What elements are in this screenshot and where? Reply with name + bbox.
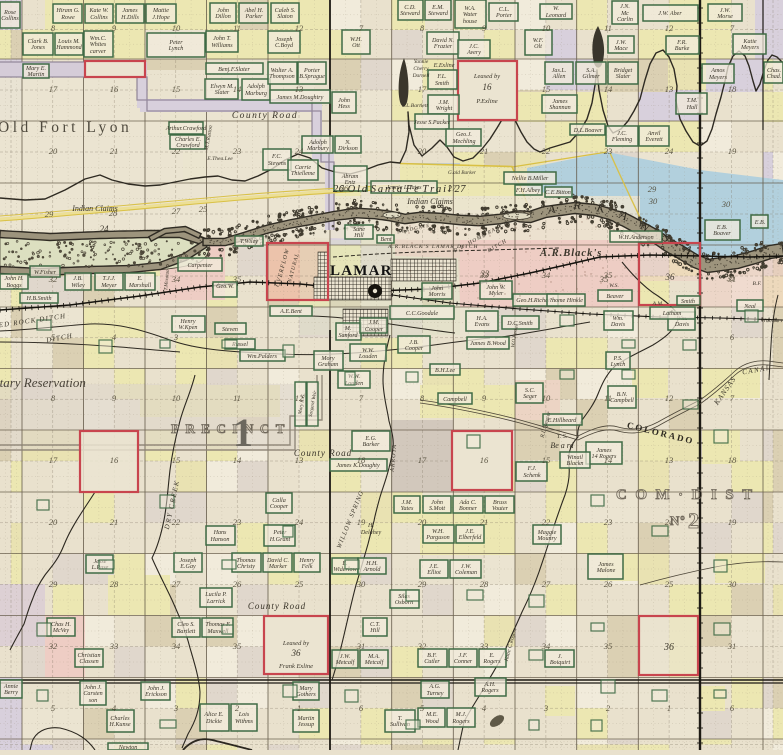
svg-text:M.J.: M.J. bbox=[455, 712, 467, 718]
svg-text:?home Hinkle: ?home Hinkle bbox=[549, 298, 583, 304]
svg-text:23: 23 bbox=[233, 146, 242, 156]
svg-text:Jesse S.Packer: Jesse S.Packer bbox=[414, 120, 451, 126]
svg-text:T.Wiley: T.Wiley bbox=[240, 239, 258, 245]
svg-text:Coleman: Coleman bbox=[455, 570, 477, 576]
svg-text:Marker: Marker bbox=[268, 564, 288, 570]
svg-text:County Road: County Road bbox=[232, 111, 298, 121]
svg-text:Ott: Ott bbox=[352, 43, 360, 49]
svg-text:25: 25 bbox=[295, 579, 304, 589]
svg-text:James B.Wood: James B.Wood bbox=[470, 341, 507, 347]
svg-text:Rowe: Rowe bbox=[60, 15, 75, 21]
svg-text:Berry: Berry bbox=[4, 690, 18, 696]
svg-text:Chad.: Chad. bbox=[767, 74, 782, 80]
svg-text:12: 12 bbox=[295, 23, 304, 33]
svg-text:Barker: Barker bbox=[363, 442, 381, 448]
svg-text:Seger: Seger bbox=[523, 394, 538, 400]
svg-text:Porter: Porter bbox=[495, 13, 513, 19]
svg-text:24: 24 bbox=[665, 146, 674, 156]
svg-text:15: 15 bbox=[542, 455, 551, 465]
svg-text:T.J.J.: T.J.J. bbox=[103, 276, 116, 282]
svg-text:1: 1 bbox=[667, 703, 671, 713]
svg-text:10: 10 bbox=[172, 23, 181, 33]
svg-text:Everett: Everett bbox=[644, 137, 663, 143]
svg-text:3: 3 bbox=[543, 703, 548, 713]
svg-text:Smith: Smith bbox=[681, 299, 695, 305]
svg-text:5: 5 bbox=[420, 703, 424, 713]
svg-text:11: 11 bbox=[604, 393, 612, 403]
svg-text:Frank Exline: Frank Exline bbox=[278, 663, 313, 670]
svg-text:30: 30 bbox=[721, 199, 731, 209]
svg-text:Gilmer: Gilmer bbox=[582, 74, 600, 80]
svg-text:Schenk: Schenk bbox=[523, 473, 541, 479]
svg-text:27: 27 bbox=[172, 206, 181, 216]
svg-text:Wm.Palders: Wm.Palders bbox=[247, 354, 278, 360]
svg-text:Leonard: Leonard bbox=[545, 13, 567, 19]
svg-text:10: 10 bbox=[542, 393, 551, 403]
svg-text:Fleming: Fleming bbox=[611, 137, 632, 143]
svg-text:28: 28 bbox=[110, 579, 119, 589]
svg-text:Be a rd: Be a rd bbox=[550, 441, 574, 450]
svg-text:Elberfeld: Elberfeld bbox=[458, 534, 483, 541]
svg-text:14: 14 bbox=[604, 455, 613, 465]
svg-text:Cherry: Cherry bbox=[413, 66, 429, 72]
svg-text:Stevens: Stevens bbox=[268, 161, 287, 167]
svg-text:Meyer: Meyer bbox=[100, 283, 117, 289]
svg-text:M.E.: M.E. bbox=[425, 712, 438, 718]
svg-text:Carpenter: Carpenter bbox=[187, 263, 213, 269]
svg-text:11: 11 bbox=[604, 23, 612, 33]
svg-text:Allen: Allen bbox=[552, 74, 566, 80]
svg-text:H.B.Smith: H.B.Smith bbox=[25, 296, 51, 302]
svg-text:Thompson: Thompson bbox=[269, 74, 294, 80]
svg-text:A.E.Bent: A.E.Bent bbox=[279, 309, 302, 315]
svg-text:W.S.: W.S. bbox=[609, 283, 619, 289]
svg-text:Slater: Slater bbox=[215, 90, 230, 96]
svg-text:26: 26 bbox=[233, 579, 242, 589]
svg-text:James: James bbox=[122, 8, 138, 14]
svg-text:11: 11 bbox=[233, 23, 241, 33]
svg-text:G.ald Barker: G.ald Barker bbox=[448, 170, 477, 176]
svg-text:19: 19 bbox=[357, 517, 366, 527]
svg-text:20: 20 bbox=[418, 146, 427, 156]
svg-text:Water: Water bbox=[463, 12, 478, 18]
svg-text:Collins: Collins bbox=[90, 15, 108, 21]
svg-text:29: 29 bbox=[45, 209, 54, 219]
svg-text:W.H.Anderson: W.H.Anderson bbox=[618, 235, 653, 241]
svg-text:C.Boyd: C.Boyd bbox=[275, 43, 294, 49]
svg-text:Cooper: Cooper bbox=[270, 504, 289, 510]
svg-text:Williams: Williams bbox=[211, 43, 233, 49]
svg-text:J.B.: J.B. bbox=[73, 276, 82, 282]
svg-text:34: 34 bbox=[541, 641, 551, 651]
svg-text:22: 22 bbox=[542, 146, 551, 156]
svg-text:35: 35 bbox=[232, 274, 242, 284]
svg-text:J.Hope: J.Hope bbox=[152, 15, 170, 21]
svg-text:Steven: Steven bbox=[222, 327, 238, 333]
svg-text:Bent: Bent bbox=[380, 237, 391, 243]
svg-text:C.E.Bitton: C.E.Bitton bbox=[545, 190, 571, 196]
svg-text:Metcalf: Metcalf bbox=[364, 659, 385, 666]
svg-text:29: 29 bbox=[648, 184, 657, 194]
svg-text:31: 31 bbox=[726, 273, 736, 283]
svg-text:25: 25 bbox=[199, 204, 208, 214]
svg-text:Arnold: Arnold bbox=[363, 567, 382, 573]
svg-text:Hiram G.: Hiram G. bbox=[55, 8, 79, 14]
svg-text:24: 24 bbox=[295, 146, 304, 156]
svg-text:Benj.F.Slater: Benj.F.Slater bbox=[218, 67, 250, 73]
svg-text:Kate W.: Kate W. bbox=[88, 8, 108, 14]
svg-text:2: 2 bbox=[688, 508, 706, 533]
svg-text:Marburg: Marburg bbox=[244, 91, 267, 97]
svg-text:28: 28 bbox=[480, 579, 489, 589]
svg-text:Nellie B.Miller: Nellie B.Miller bbox=[511, 176, 549, 182]
svg-text:Hill: Hill bbox=[353, 233, 364, 239]
svg-text:Metcalf: Metcalf bbox=[335, 659, 356, 666]
svg-text:13: 13 bbox=[295, 84, 304, 94]
svg-text:Louden: Louden bbox=[358, 354, 377, 360]
svg-text:Dillon: Dillon bbox=[214, 14, 231, 20]
svg-text:Wood: Wood bbox=[425, 719, 440, 725]
svg-text:27: 27 bbox=[172, 579, 181, 589]
svg-text:Conner: Conner bbox=[454, 659, 473, 665]
svg-text:H.Dills: H.Dills bbox=[120, 15, 139, 21]
svg-text:Smith: Smith bbox=[435, 81, 449, 87]
svg-text:Vouter: Vouter bbox=[492, 506, 509, 512]
svg-text:Lynch: Lynch bbox=[610, 362, 626, 368]
svg-text:H.Kunse: H.Kunse bbox=[108, 722, 130, 728]
svg-text:A.G.: A.G. bbox=[428, 684, 440, 690]
svg-text:13: 13 bbox=[665, 84, 674, 94]
svg-text:Rogers: Rogers bbox=[451, 719, 470, 725]
svg-text:5: 5 bbox=[51, 703, 55, 713]
svg-text:Parker: Parker bbox=[245, 14, 264, 20]
svg-text:County Road: County Road bbox=[294, 448, 352, 458]
svg-text:F.J.: F.J. bbox=[527, 466, 537, 472]
svg-text:29: 29 bbox=[49, 579, 58, 589]
svg-text:17: 17 bbox=[49, 84, 58, 94]
svg-text:E.Hillbeard: E.Hillbeard bbox=[547, 418, 578, 424]
svg-text:D.L.Boaver: D.L.Boaver bbox=[573, 128, 603, 134]
svg-text:Hill: Hill bbox=[369, 628, 380, 634]
svg-text:P.Exline: P.Exline bbox=[475, 98, 497, 105]
svg-text:Classen: Classen bbox=[79, 659, 98, 665]
svg-text:C.C.Goodale: C.C.Goodale bbox=[406, 311, 438, 317]
svg-text:Hess: Hess bbox=[337, 104, 350, 110]
svg-text:Lois: Lois bbox=[238, 712, 250, 718]
svg-text:29: 29 bbox=[418, 579, 427, 589]
svg-text:Leased by: Leased by bbox=[282, 640, 309, 647]
svg-text:Graham: Graham bbox=[318, 362, 339, 368]
svg-text:16: 16 bbox=[480, 455, 489, 465]
svg-text:Frazier: Frazier bbox=[433, 44, 453, 50]
svg-text:Cleo S.: Cleo S. bbox=[177, 622, 195, 628]
svg-text:33: 33 bbox=[109, 641, 119, 651]
svg-text:30: 30 bbox=[648, 196, 658, 206]
svg-text:E.Gay: E.Gay bbox=[179, 564, 196, 570]
svg-text:McVey: McVey bbox=[52, 628, 70, 634]
svg-text:J.W. Aber: J.W. Aber bbox=[658, 11, 682, 17]
svg-text:Neal: Neal bbox=[743, 304, 756, 310]
svg-text:Marshall: Marshall bbox=[128, 283, 152, 289]
svg-text:John H.: John H. bbox=[4, 276, 23, 282]
svg-text:33: 33 bbox=[480, 269, 491, 279]
svg-text:15: 15 bbox=[172, 84, 181, 94]
svg-text:Davis: Davis bbox=[674, 322, 690, 328]
svg-text:Martin: Martin bbox=[27, 72, 45, 78]
svg-text:13: 13 bbox=[665, 455, 674, 465]
svg-text:Beaver: Beaver bbox=[606, 294, 624, 300]
svg-text:Sanford: Sanford bbox=[338, 332, 358, 339]
svg-text:27: 27 bbox=[542, 579, 551, 589]
svg-text:15: 15 bbox=[172, 455, 181, 465]
svg-text:Latham: Latham bbox=[662, 311, 682, 317]
svg-text:21: 21 bbox=[480, 517, 489, 527]
svg-text:Leased by: Leased by bbox=[473, 73, 500, 80]
svg-text:24: 24 bbox=[100, 224, 110, 234]
svg-text:24: 24 bbox=[295, 517, 304, 527]
svg-text:S.Mott: S.Mott bbox=[429, 506, 445, 512]
svg-text:Withms: Withms bbox=[235, 719, 254, 725]
svg-text:14: 14 bbox=[233, 455, 242, 465]
svg-text:32: 32 bbox=[417, 641, 427, 651]
svg-text:Cooper: Cooper bbox=[405, 346, 424, 352]
svg-text:Carlin: Carlin bbox=[617, 17, 633, 23]
svg-text:Rogers: Rogers bbox=[482, 659, 501, 665]
svg-text:E.B.: E.B. bbox=[754, 220, 766, 226]
svg-text:F.H.Albey: F.H.Albey bbox=[515, 188, 541, 194]
svg-text:son: son bbox=[89, 698, 97, 704]
svg-text:Meyers: Meyers bbox=[708, 75, 728, 81]
svg-text:Slater: Slater bbox=[616, 74, 631, 80]
svg-text:Hammond: Hammond bbox=[55, 45, 82, 51]
svg-text:Elliot: Elliot bbox=[426, 570, 441, 576]
svg-text:Morse: Morse bbox=[716, 14, 733, 20]
svg-text:11: 11 bbox=[233, 393, 241, 403]
svg-text:carver: carver bbox=[90, 49, 107, 55]
svg-text:21: 21 bbox=[110, 146, 119, 156]
svg-text:Erickson: Erickson bbox=[144, 692, 167, 698]
svg-text:F.L.: F.L. bbox=[436, 74, 446, 80]
svg-text:Davis: Davis bbox=[610, 322, 626, 328]
svg-text:Mounry: Mounry bbox=[536, 536, 557, 542]
svg-text:Wright: Wright bbox=[436, 106, 453, 112]
svg-text:E.Exline: E.Exline bbox=[433, 63, 455, 69]
svg-text:21: 21 bbox=[110, 517, 119, 527]
svg-text:Meyers: Meyers bbox=[740, 45, 760, 51]
svg-text:30: 30 bbox=[727, 579, 737, 589]
svg-text:E.: E. bbox=[136, 276, 142, 282]
svg-text:17: 17 bbox=[418, 84, 427, 94]
svg-text:LAMAR: LAMAR bbox=[330, 263, 393, 279]
svg-text:17: 17 bbox=[418, 455, 427, 465]
svg-text:Parguson: Parguson bbox=[425, 535, 449, 541]
svg-text:16: 16 bbox=[110, 84, 119, 94]
svg-text:A.R.Black's: A.R.Black's bbox=[539, 248, 602, 259]
svg-text:Carsten: Carsten bbox=[83, 691, 102, 697]
svg-text:Rogers: Rogers bbox=[480, 688, 499, 694]
svg-text:Mechling: Mechling bbox=[451, 139, 475, 145]
svg-text:10: 10 bbox=[172, 393, 181, 403]
svg-text:15: 15 bbox=[542, 84, 551, 94]
svg-text:Newton: Newton bbox=[118, 745, 138, 750]
svg-text:16: 16 bbox=[110, 455, 119, 465]
svg-text:20: 20 bbox=[49, 517, 58, 527]
svg-text:Campbell: Campbell bbox=[610, 398, 634, 404]
svg-text:Nº: Nº bbox=[670, 513, 686, 528]
svg-text:Turney: Turney bbox=[427, 691, 444, 697]
svg-text:32: 32 bbox=[48, 641, 58, 651]
svg-text:12: 12 bbox=[665, 23, 674, 33]
svg-text:Whites: Whites bbox=[90, 42, 107, 48]
svg-text:22: 22 bbox=[172, 146, 181, 156]
svg-text:T.M.: T.M. bbox=[686, 98, 697, 104]
svg-text:Dickie: Dickie bbox=[205, 719, 222, 725]
svg-text:Geo.W.: Geo.W. bbox=[216, 284, 234, 290]
svg-text:Bonner: Bonner bbox=[459, 506, 478, 512]
svg-text:Cooper: Cooper bbox=[365, 327, 384, 333]
svg-text:F.C.: F.C. bbox=[271, 154, 282, 160]
svg-text:21: 21 bbox=[480, 146, 489, 156]
svg-text:Darnell: Darnell bbox=[412, 73, 430, 79]
svg-text:Thielleme: Thielleme bbox=[291, 171, 315, 177]
svg-text:1: 1 bbox=[233, 410, 253, 455]
svg-text:B.H.Lee: B.H.Lee bbox=[435, 368, 455, 374]
svg-text:B.Sprague: B.Sprague bbox=[299, 74, 325, 80]
svg-text:J.M.: J.M. bbox=[369, 320, 380, 326]
svg-text:18: 18 bbox=[728, 84, 737, 94]
svg-text:Arthur.Crawford: Arthur.Crawford bbox=[165, 125, 208, 132]
svg-text:Campbell: Campbell bbox=[443, 397, 467, 403]
svg-text:house: house bbox=[463, 19, 478, 25]
svg-text:Shannan: Shannan bbox=[549, 105, 570, 111]
svg-text:19: 19 bbox=[728, 146, 737, 156]
svg-text:W.Kpen: W.Kpen bbox=[179, 325, 198, 331]
svg-text:14: 14 bbox=[604, 84, 613, 94]
svg-text:Hall: Hall bbox=[686, 105, 698, 111]
svg-text:S.L.Bartlett: S.L.Bartlett bbox=[402, 103, 428, 109]
svg-text:W.: W. bbox=[553, 6, 559, 12]
svg-text:26: 26 bbox=[604, 579, 613, 589]
svg-text:Yannie: Yannie bbox=[414, 59, 429, 65]
svg-text:Evans: Evans bbox=[474, 322, 491, 328]
svg-text:34: 34 bbox=[541, 270, 551, 280]
svg-text:Wiley: Wiley bbox=[71, 283, 85, 289]
svg-text:36: 36 bbox=[663, 642, 674, 653]
svg-text:23: 23 bbox=[604, 517, 613, 527]
svg-text:Lynch: Lynch bbox=[168, 46, 184, 52]
svg-text:Mace: Mace bbox=[613, 46, 628, 52]
svg-text:23: 23 bbox=[233, 517, 242, 527]
svg-text:26 O l d S a n t a F e T r a: 26 O l d S a n t a F e T r a i l 27 bbox=[333, 184, 466, 195]
svg-text:Wm.Garv: Wm.Garv bbox=[761, 318, 783, 324]
svg-text:Christy: Christy bbox=[237, 564, 255, 570]
svg-text:Indian Claims: Indian Claims bbox=[71, 204, 118, 213]
svg-text:18: 18 bbox=[728, 455, 737, 465]
svg-text:Boiquirt: Boiquirt bbox=[550, 660, 571, 666]
svg-text:Steward: Steward bbox=[428, 11, 449, 17]
svg-text:Lucila P.: Lucila P. bbox=[204, 592, 227, 598]
svg-text:33: 33 bbox=[479, 641, 489, 651]
svg-text:36: 36 bbox=[665, 272, 676, 282]
svg-text:M.: M. bbox=[344, 326, 352, 332]
svg-text:31: 31 bbox=[727, 641, 737, 651]
svg-text:17: 17 bbox=[49, 455, 58, 465]
svg-text:Blackn: Blackn bbox=[567, 461, 584, 467]
svg-text:18: 18 bbox=[357, 455, 366, 465]
svg-text:H.Grant: H.Grant bbox=[269, 537, 291, 543]
svg-text:Felk: Felk bbox=[301, 564, 313, 570]
svg-text:Hanson: Hanson bbox=[210, 537, 230, 543]
svg-text:Slaton: Slaton bbox=[277, 14, 293, 20]
svg-text:E.Thea.Lee: E.Thea.Lee bbox=[206, 156, 233, 162]
svg-text:32: 32 bbox=[48, 274, 58, 284]
svg-text:Boaver: Boaver bbox=[713, 231, 731, 237]
svg-text:34: 34 bbox=[171, 641, 181, 651]
svg-text:Myler: Myler bbox=[488, 291, 504, 297]
svg-text:H.: H. bbox=[367, 523, 374, 529]
svg-text:12: 12 bbox=[665, 393, 674, 403]
svg-text:Jones: Jones bbox=[31, 45, 46, 51]
svg-text:Geo.J.: Geo.J. bbox=[456, 132, 472, 138]
svg-text:35: 35 bbox=[232, 641, 242, 651]
svg-text:Old Fort Lyon: Old Fort Lyon bbox=[0, 119, 132, 136]
svg-text:Hans: Hans bbox=[213, 530, 227, 536]
svg-text:A.M.: A.M. bbox=[652, 301, 664, 307]
svg-text:Alice E.: Alice E. bbox=[203, 712, 223, 718]
svg-text:PRECINCT: PRECINCT bbox=[171, 421, 291, 436]
svg-text:A.R.BLACK'S LAMAR DITCH: A.R.BLACK'S LAMAR DITCH bbox=[387, 244, 479, 250]
svg-text:Collins: Collins bbox=[1, 16, 19, 22]
svg-text:12: 12 bbox=[295, 393, 304, 403]
svg-text:30: 30 bbox=[356, 579, 366, 589]
svg-text:Mattie: Mattie bbox=[152, 8, 169, 14]
svg-text:20: 20 bbox=[418, 517, 427, 527]
svg-text:Burke: Burke bbox=[675, 46, 690, 52]
svg-text:T. S.: T. S. bbox=[557, 434, 568, 440]
svg-text:Malone: Malone bbox=[596, 568, 616, 574]
svg-text:Delahey: Delahey bbox=[360, 530, 382, 536]
svg-text:20: 20 bbox=[49, 146, 58, 156]
svg-text:County Road: County Road bbox=[248, 601, 306, 611]
svg-text:Larrick: Larrick bbox=[206, 599, 226, 605]
svg-text:J.N.: J.N. bbox=[620, 4, 630, 10]
svg-text:James M.Doughtry: James M.Doughtry bbox=[277, 95, 324, 101]
svg-text:Bartlett: Bartlett bbox=[177, 629, 196, 635]
svg-text:31: 31 bbox=[356, 641, 366, 651]
svg-text:Indian Claims: Indian Claims bbox=[406, 197, 453, 206]
svg-text:19: 19 bbox=[728, 517, 737, 527]
svg-text:14: 14 bbox=[233, 84, 242, 94]
svg-text:Yates: Yates bbox=[401, 506, 414, 512]
svg-text:Adolph: Adolph bbox=[246, 84, 265, 90]
svg-text:Jessup: Jessup bbox=[298, 722, 314, 728]
svg-text:36: 36 bbox=[291, 648, 302, 658]
svg-text:Dirkson: Dirkson bbox=[337, 146, 358, 152]
svg-text:16: 16 bbox=[483, 82, 493, 92]
svg-text:Avery: Avery bbox=[466, 50, 481, 56]
svg-text:35: 35 bbox=[599, 274, 609, 284]
svg-text:10: 10 bbox=[542, 23, 551, 33]
svg-text:R: R bbox=[572, 198, 582, 213]
svg-text:Olt: Olt bbox=[534, 44, 542, 50]
svg-text:3: 3 bbox=[173, 332, 178, 342]
svg-text:B.F.: B.F. bbox=[753, 281, 762, 287]
svg-text:Steward: Steward bbox=[400, 11, 421, 17]
svg-text:Cutler: Cutler bbox=[424, 659, 440, 665]
svg-text:3: 3 bbox=[173, 703, 178, 713]
svg-text:25: 25 bbox=[665, 579, 674, 589]
svg-text:34: 34 bbox=[171, 274, 181, 284]
